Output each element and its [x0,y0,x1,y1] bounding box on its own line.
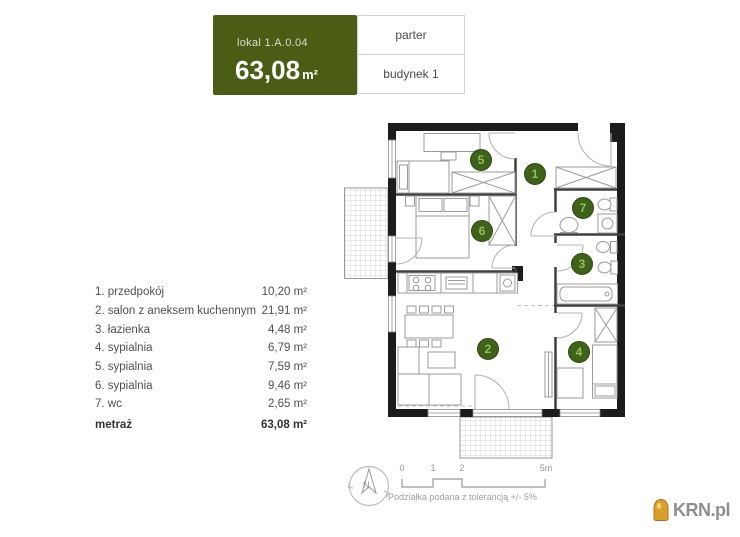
scale-tick-5m: 5m [540,463,553,473]
room-badge-1: 1 [524,163,546,185]
krn-logo: KRN.pl [651,498,730,523]
room-badge-5: 5 [470,149,492,171]
room-badge-6: 6 [471,220,493,242]
room-badge-3: 3 [571,253,593,275]
krn-logo-icon [651,498,671,523]
compass-north-label: N [363,480,370,490]
krn-logo-text: KRN.pl [673,500,730,521]
listing-floorplan-page: lokal 1.A.0.04 63,08m² parter budynek 1 … [0,0,740,537]
scale-tick-0: 0 [399,463,404,473]
scale-tolerance-note: Podziałka podana z tolerancją +/- 5% [388,492,578,502]
scale-tick-1: 1 [430,463,435,473]
scale-tick-2: 2 [459,463,464,473]
room-badge-2: 2 [477,338,499,360]
room-badge-4: 4 [568,341,590,363]
scale-bar [402,479,545,487]
room-badge-7: 7 [572,197,594,219]
floor-plan [0,0,740,537]
